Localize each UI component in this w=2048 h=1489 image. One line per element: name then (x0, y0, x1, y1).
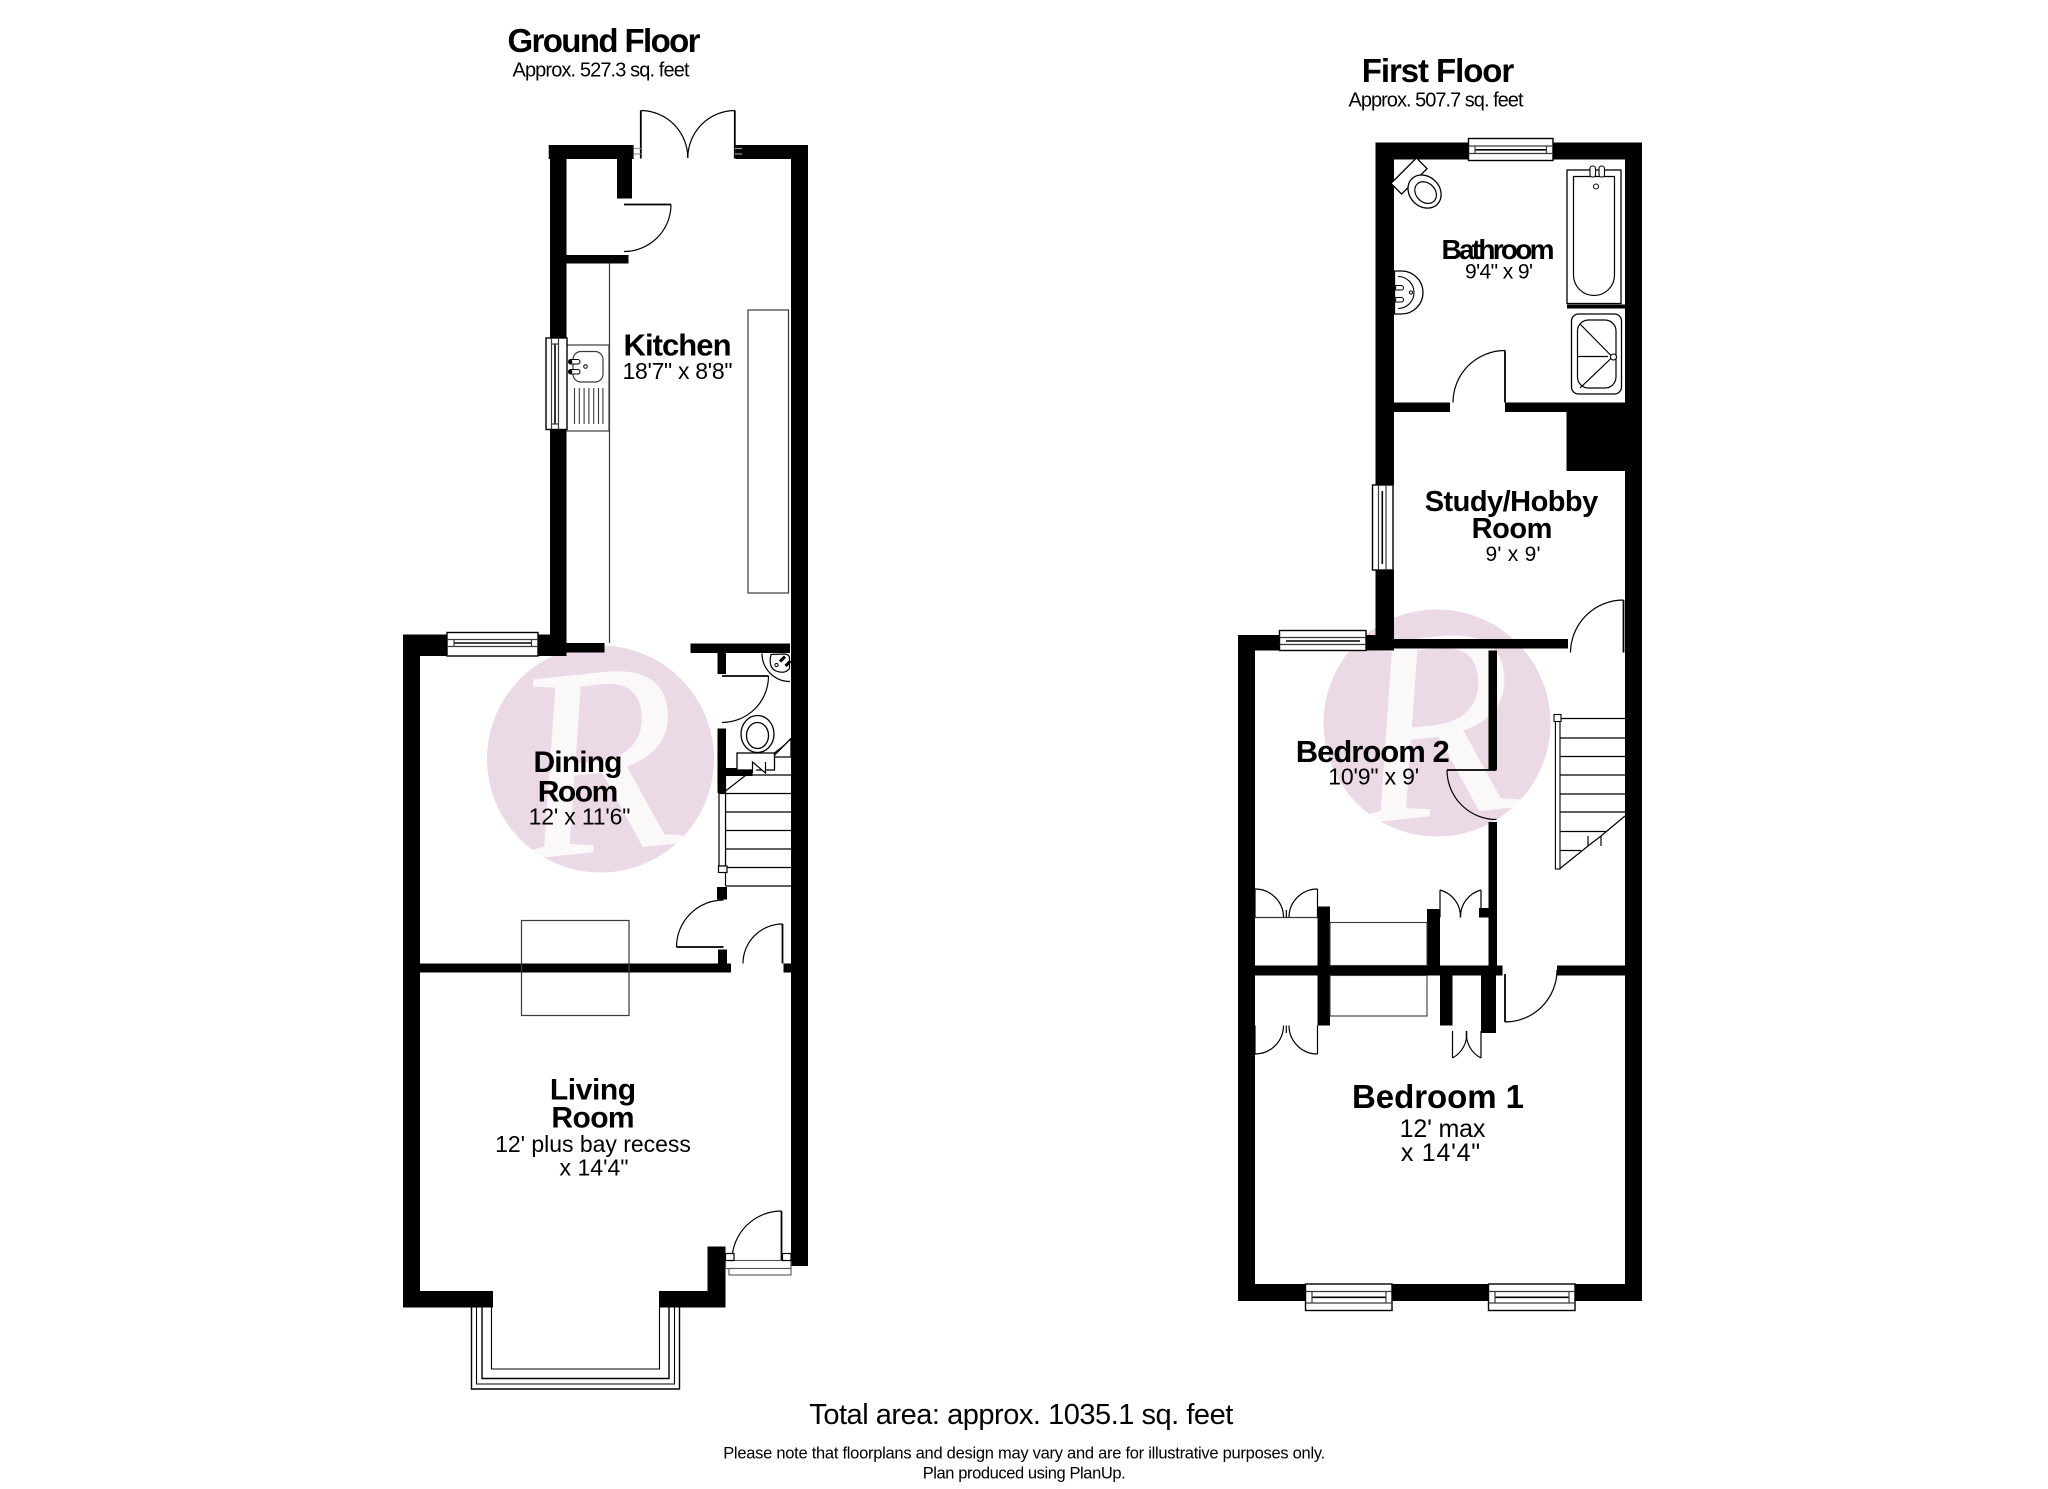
svg-text:Bedroom 1: Bedroom 1 (1352, 1078, 1524, 1115)
svg-text:Ground Floor: Ground Floor (508, 22, 701, 59)
svg-text:First Floor: First Floor (1362, 52, 1515, 89)
svg-text:x 14'4": x 14'4" (1401, 1139, 1480, 1167)
svg-text:9' x 9': 9' x 9' (1486, 543, 1541, 566)
svg-text:Approx. 527.3 sq. feet: Approx. 527.3 sq. feet (513, 59, 690, 81)
svg-text:12' plus bay recess: 12' plus bay recess (495, 1131, 691, 1157)
svg-text:12' x 11'6": 12' x 11'6" (529, 804, 631, 830)
svg-text:Dining: Dining (534, 746, 623, 779)
svg-text:R: R (1331, 566, 1532, 883)
svg-text:Room: Room (551, 1102, 634, 1135)
svg-text:Please note that floorplans an: Please note that floorplans and design m… (723, 1445, 1325, 1463)
svg-text:Approx. 507.7 sq. feet: Approx. 507.7 sq. feet (1349, 89, 1524, 111)
svg-text:x 14'4": x 14'4" (560, 1155, 629, 1181)
svg-text:Room: Room (1472, 513, 1553, 545)
svg-text:18'7" x 8'8": 18'7" x 8'8" (623, 358, 733, 384)
svg-text:10'9" x 9': 10'9" x 9' (1328, 764, 1419, 790)
svg-text:Plan produced using PlanUp.: Plan produced using PlanUp. (923, 1465, 1126, 1483)
svg-text:Total area: approx. 1035.1 sq.: Total area: approx. 1035.1 sq. feet (809, 1399, 1233, 1431)
svg-text:9'4" x 9': 9'4" x 9' (1465, 261, 1533, 284)
